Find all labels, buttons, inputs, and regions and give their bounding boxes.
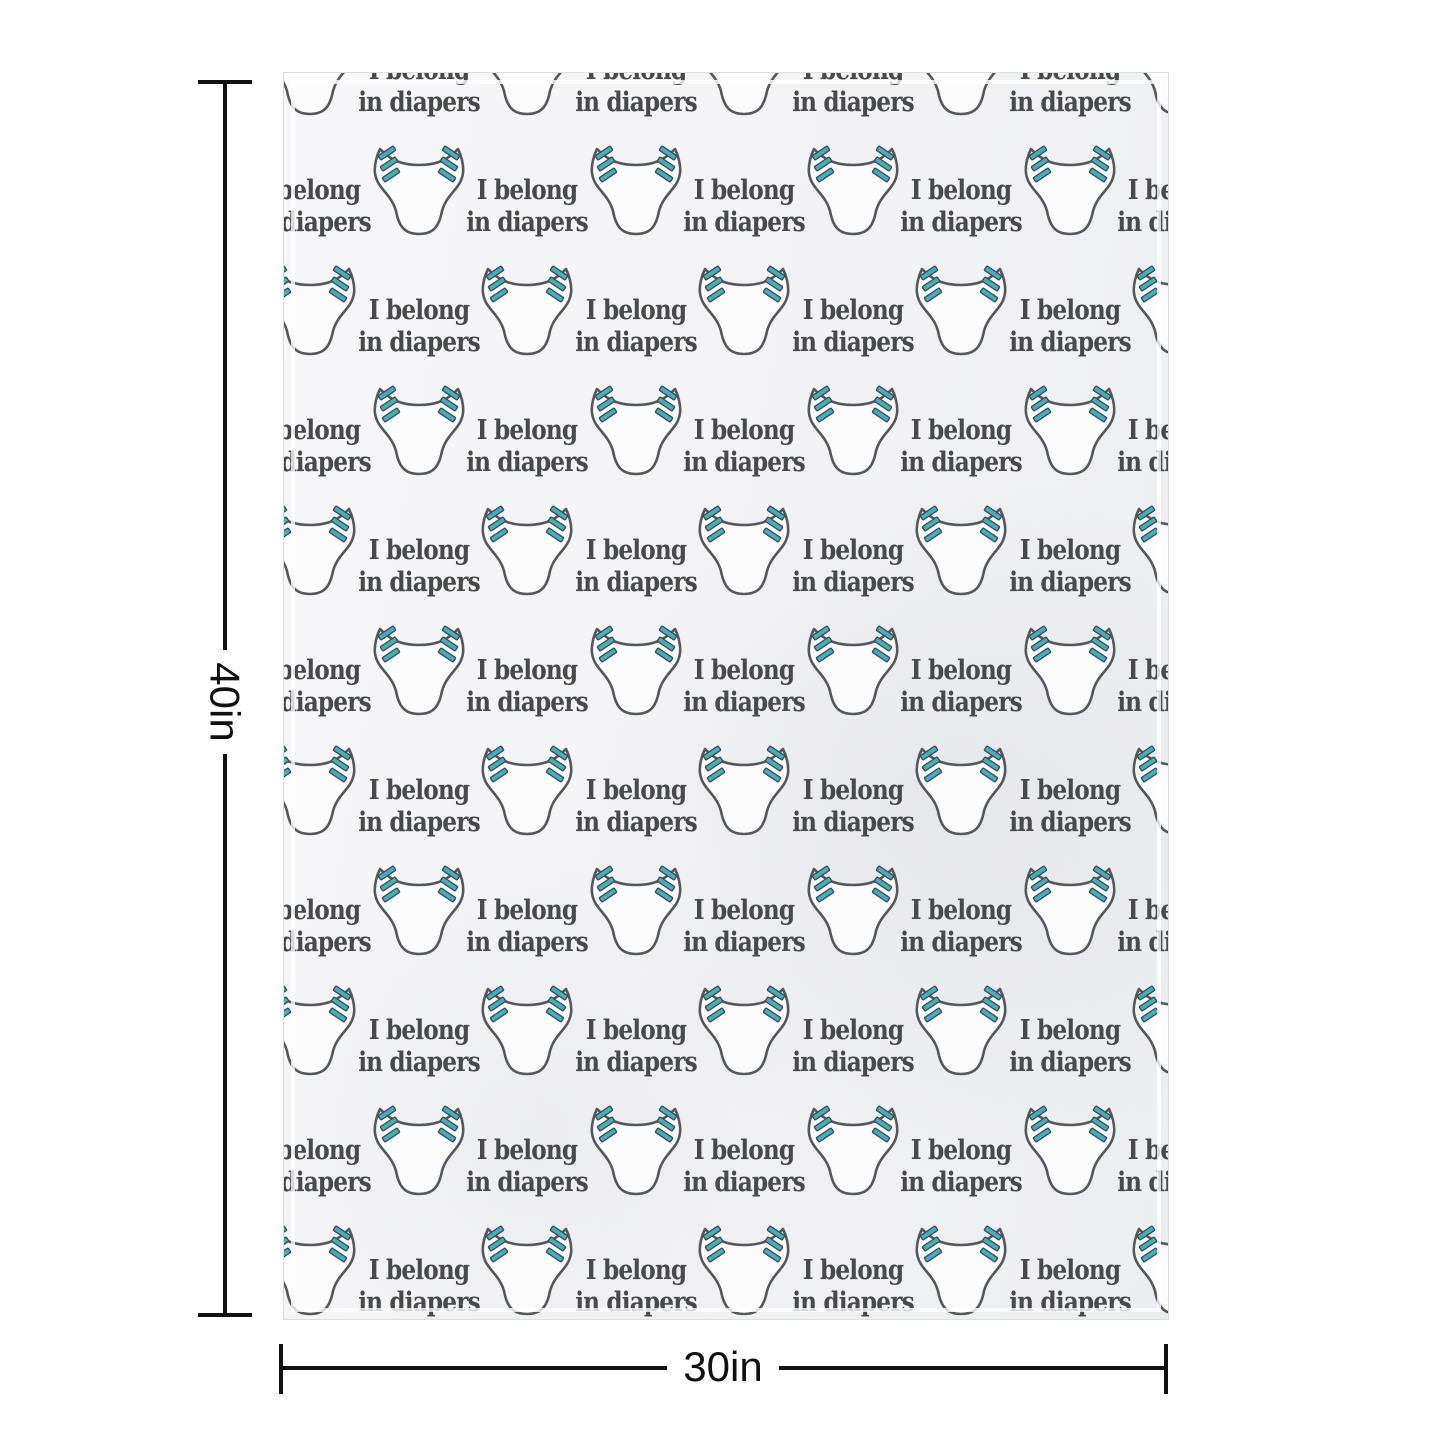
pattern-text: I belongin diapers <box>888 895 1034 959</box>
pattern-text-line1: I belong <box>454 175 600 207</box>
diaper-icon <box>697 495 791 606</box>
pattern-text: I belongin diapers <box>671 175 817 239</box>
pattern-text-line2: in diapers <box>562 1287 708 1319</box>
pattern-text-line2: in diapers <box>454 1167 600 1199</box>
diaper-icon <box>697 255 791 366</box>
diaper-icon <box>914 735 1008 846</box>
pattern-text-line1: I belong <box>283 895 383 927</box>
pattern-text: I belongin diapers <box>671 415 817 479</box>
pattern-text-line2: in diapers <box>345 1287 491 1319</box>
pattern-text: I belongin diapers <box>996 1015 1142 1079</box>
pattern-text-line1: I belong <box>779 535 925 567</box>
pattern-text-line2: in diapers <box>1105 1167 1169 1199</box>
pattern-text: I belongin diapers <box>996 72 1142 119</box>
diaper-icon <box>1023 375 1117 486</box>
pattern-text-line1: I belong <box>345 295 491 327</box>
pattern-text-line2: in diapers <box>454 207 600 239</box>
pattern-text-line2: in diapers <box>671 1167 817 1199</box>
pattern-text-line1: I belong <box>671 1135 817 1167</box>
pattern-text-line1: I belong <box>671 655 817 687</box>
diaper-icon <box>806 855 900 966</box>
pattern-area: I belongin diapers I belongin diapers I … <box>284 73 1168 1319</box>
pattern-text: I belongin diapers <box>671 895 817 959</box>
pattern-text-line1: I belong <box>671 895 817 927</box>
pattern-text: I belongin diapers <box>345 535 491 599</box>
diaper-icon <box>1131 72 1169 126</box>
pattern-text-line2: in diapers <box>996 327 1142 359</box>
pattern-text: I belongin diapers <box>454 415 600 479</box>
pattern-text-line2: in diapers <box>671 447 817 479</box>
pattern-text-line1: I belong <box>283 415 383 447</box>
pattern-text: I belongin diapers <box>888 655 1034 719</box>
height-dimension-line-upper <box>223 80 227 650</box>
pattern-text: I belongin diapers <box>283 415 383 479</box>
pattern-text-line2: in diapers <box>1105 207 1169 239</box>
pattern-text-line2: in diapers <box>996 807 1142 839</box>
diaper-icon <box>372 375 466 486</box>
pattern-text: I belongin diapers <box>888 1135 1034 1199</box>
width-dimension-label: 30in <box>667 1340 779 1394</box>
pattern-text-line2: in diapers <box>562 807 708 839</box>
pattern-text-line2: in diapers <box>454 927 600 959</box>
pattern-text-line2: in diapers <box>283 207 383 239</box>
pattern-text-line1: I belong <box>345 1255 491 1287</box>
pattern-text: I belongin diapers <box>996 535 1142 599</box>
pattern-text-line2: in diapers <box>779 87 925 119</box>
pattern-text: I belongin diapers <box>454 655 600 719</box>
pattern-text-line1: I belong <box>454 895 600 927</box>
diaper-icon <box>1131 975 1169 1086</box>
pattern-text-line1: I belong <box>454 655 600 687</box>
pattern-text-line1: I belong <box>996 1015 1142 1047</box>
pattern-text-line2: in diapers <box>1105 447 1169 479</box>
pattern-text-line2: in diapers <box>1105 687 1169 719</box>
pattern-text: I belongin diapers <box>283 895 383 959</box>
pattern-text-line2: in diapers <box>283 447 383 479</box>
pattern-text: I belongin diapers <box>454 175 600 239</box>
pattern-text-line2: in diapers <box>671 687 817 719</box>
pattern-text: I belongin diapers <box>888 175 1034 239</box>
pattern-text: I belongin diapers <box>1105 175 1169 239</box>
pattern-text-line1: I belong <box>562 1255 708 1287</box>
pattern-text-line1: I belong <box>996 775 1142 807</box>
pattern-text: I belongin diapers <box>345 72 491 119</box>
pattern-text-line2: in diapers <box>283 687 383 719</box>
pattern-text-line1: I belong <box>996 72 1142 87</box>
pattern-text: I belongin diapers <box>779 1015 925 1079</box>
blanket-preview: I belongin diapers I belongin diapers I … <box>283 72 1169 1320</box>
pattern-text-line1: I belong <box>1105 1135 1169 1167</box>
pattern-text-line1: I belong <box>1105 415 1169 447</box>
diaper-icon <box>697 735 791 846</box>
pattern-text-line1: I belong <box>888 175 1034 207</box>
pattern-text-line2: in diapers <box>888 1167 1034 1199</box>
pattern-text: I belongin diapers <box>996 1255 1142 1319</box>
pattern-text-line2: in diapers <box>345 327 491 359</box>
diaper-icon <box>697 1215 791 1320</box>
height-dimension-line-lower <box>223 754 227 1317</box>
pattern-text: I belongin diapers <box>1105 655 1169 719</box>
pattern-text-line2: in diapers <box>779 327 925 359</box>
pattern-text-line2: in diapers <box>454 447 600 479</box>
pattern-text: I belongin diapers <box>779 535 925 599</box>
diaper-icon <box>806 375 900 486</box>
diaper-icon <box>589 1095 683 1206</box>
pattern-text-line2: in diapers <box>888 927 1034 959</box>
pattern-text-line1: I belong <box>888 1135 1034 1167</box>
diaper-icon <box>914 495 1008 606</box>
pattern-text-line2: in diapers <box>562 567 708 599</box>
diaper-icon <box>1023 855 1117 966</box>
pattern-text-line1: I belong <box>345 72 491 87</box>
width-dimension-right-cap <box>1164 1344 1168 1394</box>
pattern-text: I belongin diapers <box>562 535 708 599</box>
pattern-text-line1: I belong <box>671 415 817 447</box>
pattern-text: I belongin diapers <box>562 295 708 359</box>
pattern-text: I belongin diapers <box>345 295 491 359</box>
pattern-text-line2: in diapers <box>345 87 491 119</box>
pattern-text: I belongin diapers <box>996 295 1142 359</box>
pattern-text-line2: in diapers <box>345 807 491 839</box>
pattern-text-line2: in diapers <box>283 1167 383 1199</box>
pattern-text: I belongin diapers <box>671 1135 817 1199</box>
pattern-text-line2: in diapers <box>562 87 708 119</box>
pattern-text: I belongin diapers <box>996 775 1142 839</box>
width-dimension-line-left <box>279 1366 667 1370</box>
pattern-text-line2: in diapers <box>996 567 1142 599</box>
diaper-icon <box>1131 1215 1169 1320</box>
pattern-text-line1: I belong <box>779 1015 925 1047</box>
pattern-text-line2: in diapers <box>779 807 925 839</box>
diaper-icon <box>1023 615 1117 726</box>
diaper-icon <box>1131 735 1169 846</box>
pattern-text-line1: I belong <box>779 775 925 807</box>
pattern-text-line1: I belong <box>345 535 491 567</box>
height-dimension-bottom-cap <box>198 1313 252 1317</box>
pattern-text: I belongin diapers <box>345 1015 491 1079</box>
pattern-text-line2: in diapers <box>779 1287 925 1319</box>
pattern-text-line1: I belong <box>888 895 1034 927</box>
pattern-text: I belongin diapers <box>562 1015 708 1079</box>
diaper-icon <box>914 72 1008 126</box>
pattern-text: I belongin diapers <box>779 1255 925 1319</box>
height-dimension-label: 40in <box>201 662 249 741</box>
pattern-text: I belongin diapers <box>779 295 925 359</box>
pattern-text: I belongin diapers <box>779 775 925 839</box>
diaper-icon <box>1131 255 1169 366</box>
diaper-icon <box>806 135 900 246</box>
pattern-text-line2: in diapers <box>888 447 1034 479</box>
pattern-text-line2: in diapers <box>454 687 600 719</box>
pattern-text-line1: I belong <box>283 175 383 207</box>
diaper-icon <box>589 375 683 486</box>
pattern-text-line1: I belong <box>779 295 925 327</box>
pattern-text-line2: in diapers <box>345 567 491 599</box>
pattern-text: I belongin diapers <box>562 1255 708 1319</box>
pattern-text-line1: I belong <box>283 1135 383 1167</box>
pattern-text: I belongin diapers <box>283 1135 383 1199</box>
pattern-text-line1: I belong <box>779 72 925 87</box>
pattern-text: I belongin diapers <box>562 775 708 839</box>
pattern-text-line1: I belong <box>562 775 708 807</box>
diaper-icon <box>1131 495 1169 606</box>
pattern-text: I belongin diapers <box>671 655 817 719</box>
diaper-icon <box>372 1095 466 1206</box>
diaper-icon <box>589 135 683 246</box>
diaper-icon <box>914 1215 1008 1320</box>
diaper-icon <box>372 855 466 966</box>
diaper-icon <box>806 1095 900 1206</box>
diaper-icon <box>914 975 1008 1086</box>
pattern-text-line1: I belong <box>671 175 817 207</box>
pattern-text-line1: I belong <box>996 535 1142 567</box>
pattern-text-line2: in diapers <box>1105 927 1169 959</box>
pattern-text-line2: in diapers <box>779 1047 925 1079</box>
diaper-icon <box>480 1215 574 1320</box>
pattern-text-line1: I belong <box>454 1135 600 1167</box>
pattern-text: I belongin diapers <box>283 175 383 239</box>
diaper-icon <box>372 135 466 246</box>
diaper-icon <box>372 615 466 726</box>
diaper-icon <box>1023 135 1117 246</box>
pattern-text-line1: I belong <box>1105 175 1169 207</box>
diaper-icon <box>480 255 574 366</box>
pattern-text-line1: I belong <box>888 415 1034 447</box>
diaper-icon <box>914 255 1008 366</box>
pattern-text-line2: in diapers <box>562 1047 708 1079</box>
pattern-text: I belongin diapers <box>1105 1135 1169 1199</box>
pattern-text-line1: I belong <box>562 72 708 87</box>
pattern-text: I belongin diapers <box>345 775 491 839</box>
pattern-text: I belongin diapers <box>779 72 925 119</box>
diaper-icon <box>697 975 791 1086</box>
pattern-text: I belongin diapers <box>454 1135 600 1199</box>
pattern-text-line2: in diapers <box>779 567 925 599</box>
diaper-icon <box>480 72 574 126</box>
diaper-icon <box>480 735 574 846</box>
pattern-text: I belongin diapers <box>888 415 1034 479</box>
pattern-text-line1: I belong <box>562 1015 708 1047</box>
pattern-text-line1: I belong <box>996 1255 1142 1287</box>
pattern-text-line1: I belong <box>562 535 708 567</box>
pattern-text-line2: in diapers <box>996 1287 1142 1319</box>
pattern-text-line1: I belong <box>1105 895 1169 927</box>
diaper-icon <box>589 615 683 726</box>
pattern-text-line2: in diapers <box>671 927 817 959</box>
pattern-text-line2: in diapers <box>283 927 383 959</box>
pattern-text-line1: I belong <box>562 295 708 327</box>
diaper-icon <box>480 975 574 1086</box>
pattern-text-line1: I belong <box>996 295 1142 327</box>
pattern-text-line1: I belong <box>345 775 491 807</box>
pattern-text-line1: I belong <box>1105 655 1169 687</box>
diaper-icon <box>697 72 791 126</box>
pattern-text: I belongin diapers <box>283 655 383 719</box>
pattern-text-line1: I belong <box>283 655 383 687</box>
pattern-text-line2: in diapers <box>888 207 1034 239</box>
pattern-text-line2: in diapers <box>996 1047 1142 1079</box>
diaper-icon <box>480 495 574 606</box>
pattern-text-line2: in diapers <box>888 687 1034 719</box>
pattern-text: I belongin diapers <box>454 895 600 959</box>
width-dimension-line-right <box>779 1366 1166 1370</box>
pattern-text: I belongin diapers <box>345 1255 491 1319</box>
pattern-text-line2: in diapers <box>345 1047 491 1079</box>
pattern-text-line1: I belong <box>779 1255 925 1287</box>
pattern-text-line1: I belong <box>345 1015 491 1047</box>
diaper-icon <box>806 615 900 726</box>
pattern-text: I belongin diapers <box>562 72 708 119</box>
pattern-text-line2: in diapers <box>996 87 1142 119</box>
product-mockup-canvas: I belongin diapers I belongin diapers I … <box>0 0 1445 1445</box>
pattern-text-line2: in diapers <box>671 207 817 239</box>
pattern-text: I belongin diapers <box>1105 895 1169 959</box>
pattern-text-line2: in diapers <box>562 327 708 359</box>
pattern-text: I belongin diapers <box>1105 415 1169 479</box>
height-dimension-label-box: 40in <box>181 650 269 754</box>
pattern-text-line1: I belong <box>888 655 1034 687</box>
diaper-icon <box>1023 1095 1117 1206</box>
pattern-text-line1: I belong <box>454 415 600 447</box>
diaper-icon <box>589 855 683 966</box>
